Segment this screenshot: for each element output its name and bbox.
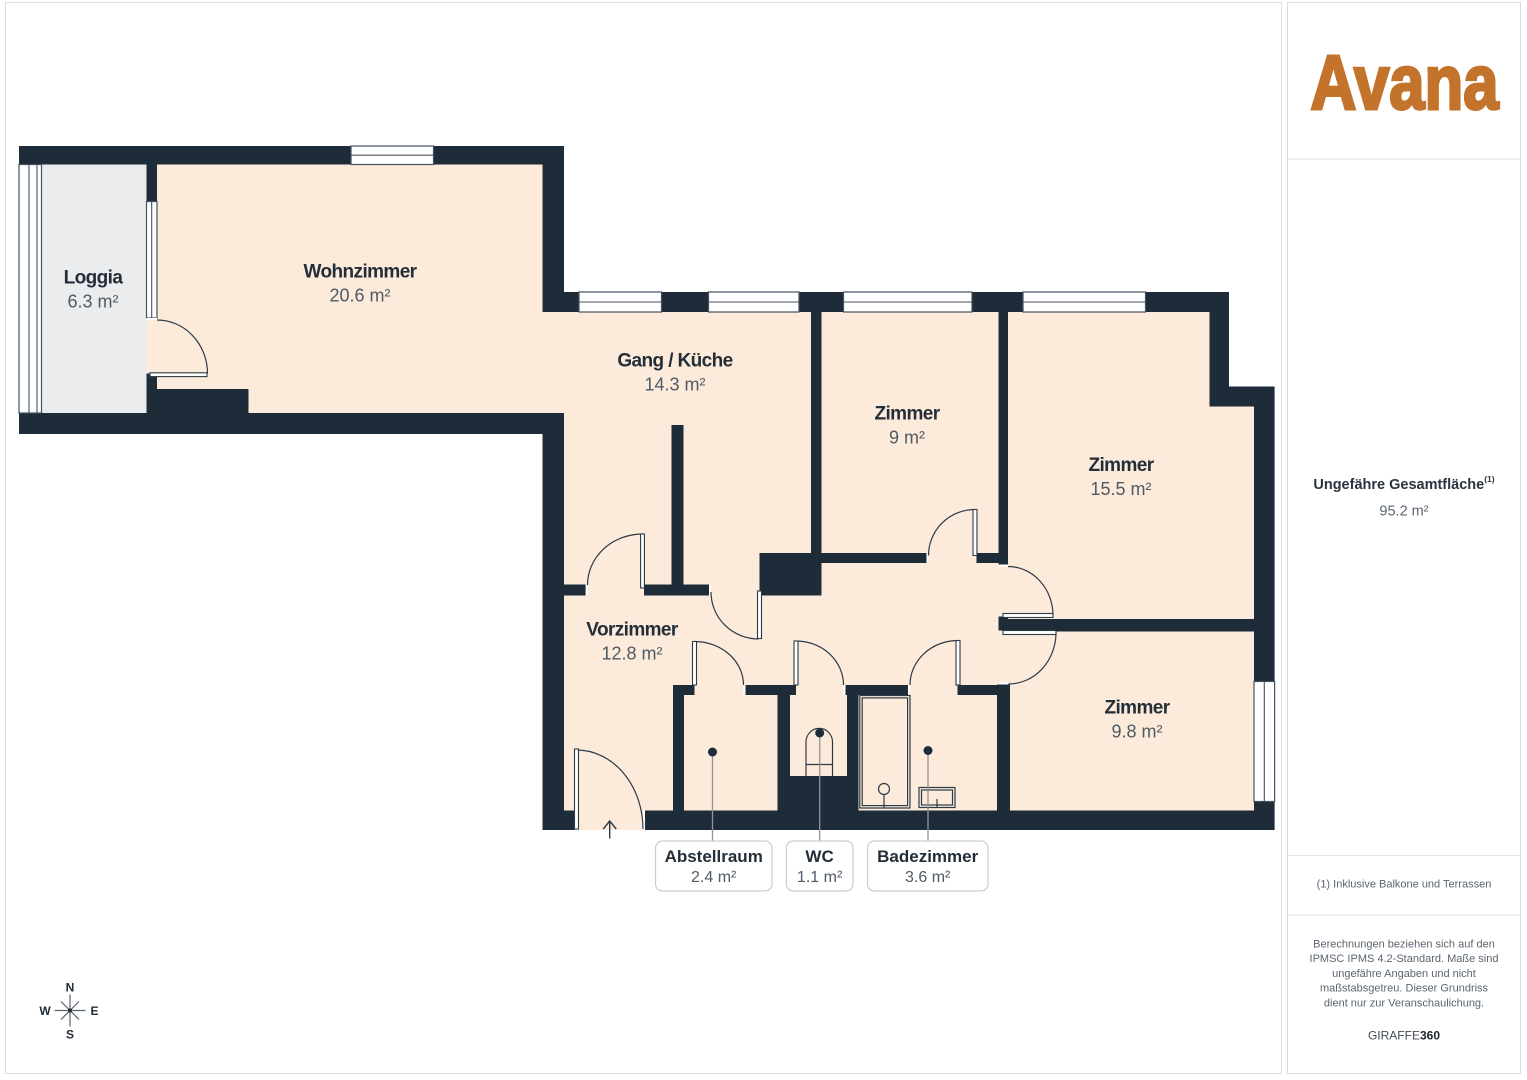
svg-text:Badezimmer: Badezimmer [877,847,978,866]
svg-text:dient nur zur Veranschaulichun: dient nur zur Veranschaulichung. [1324,997,1484,1009]
svg-text:1.1 m²: 1.1 m² [797,869,843,886]
svg-text:Zimmer: Zimmer [1088,455,1154,476]
svg-text:Zimmer: Zimmer [874,404,940,425]
svg-text:(1) Inklusive Balkone und Terr: (1) Inklusive Balkone und Terrassen [1317,879,1492,891]
svg-text:Wohnzimmer: Wohnzimmer [304,262,418,283]
svg-text:ungefähre Angaben und nicht: ungefähre Angaben und nicht [1332,968,1476,980]
svg-text:9.8 m²: 9.8 m² [1111,722,1162,742]
svg-text:20.6 m²: 20.6 m² [329,286,390,306]
svg-text:Abstellraum: Abstellraum [665,847,763,866]
svg-text:Zimmer: Zimmer [1104,698,1170,719]
svg-text:S: S [66,1028,74,1042]
svg-text:IPMSC IPMS 4.2-Standard. Maße: IPMSC IPMS 4.2-Standard. Maße sind [1310,953,1499,965]
svg-text:N: N [66,981,75,995]
svg-text:W: W [39,1004,51,1018]
svg-text:Vorzimmer: Vorzimmer [586,620,679,641]
svg-text:E: E [90,1004,98,1018]
svg-text:maßstabsgetreu. Dieser Grundri: maßstabsgetreu. Dieser Grundriss [1320,983,1489,995]
svg-text:15.5 m²: 15.5 m² [1090,479,1151,499]
svg-text:14.3 m²: 14.3 m² [644,375,705,395]
svg-text:95.2 m²: 95.2 m² [1379,504,1428,520]
svg-text:Ungefähre Gesamtfläche(1): Ungefähre Gesamtfläche(1) [1313,474,1494,493]
svg-text:WC: WC [805,847,833,866]
svg-text:GIRAFFE360: GIRAFFE360 [1368,1029,1440,1043]
svg-text:Gang / Küche: Gang / Küche [617,351,732,372]
svg-text:Loggia: Loggia [64,268,124,289]
svg-text:9 m²: 9 m² [889,428,925,448]
svg-text:6.3 m²: 6.3 m² [67,292,118,312]
svg-text:Berechnungen beziehen sich auf: Berechnungen beziehen sich auf den [1313,939,1495,951]
svg-text:3.6 m²: 3.6 m² [905,869,951,886]
svg-text:2.4 m²: 2.4 m² [691,869,737,886]
svg-text:Avana: Avana [1311,40,1500,126]
svg-text:12.8 m²: 12.8 m² [601,644,662,664]
